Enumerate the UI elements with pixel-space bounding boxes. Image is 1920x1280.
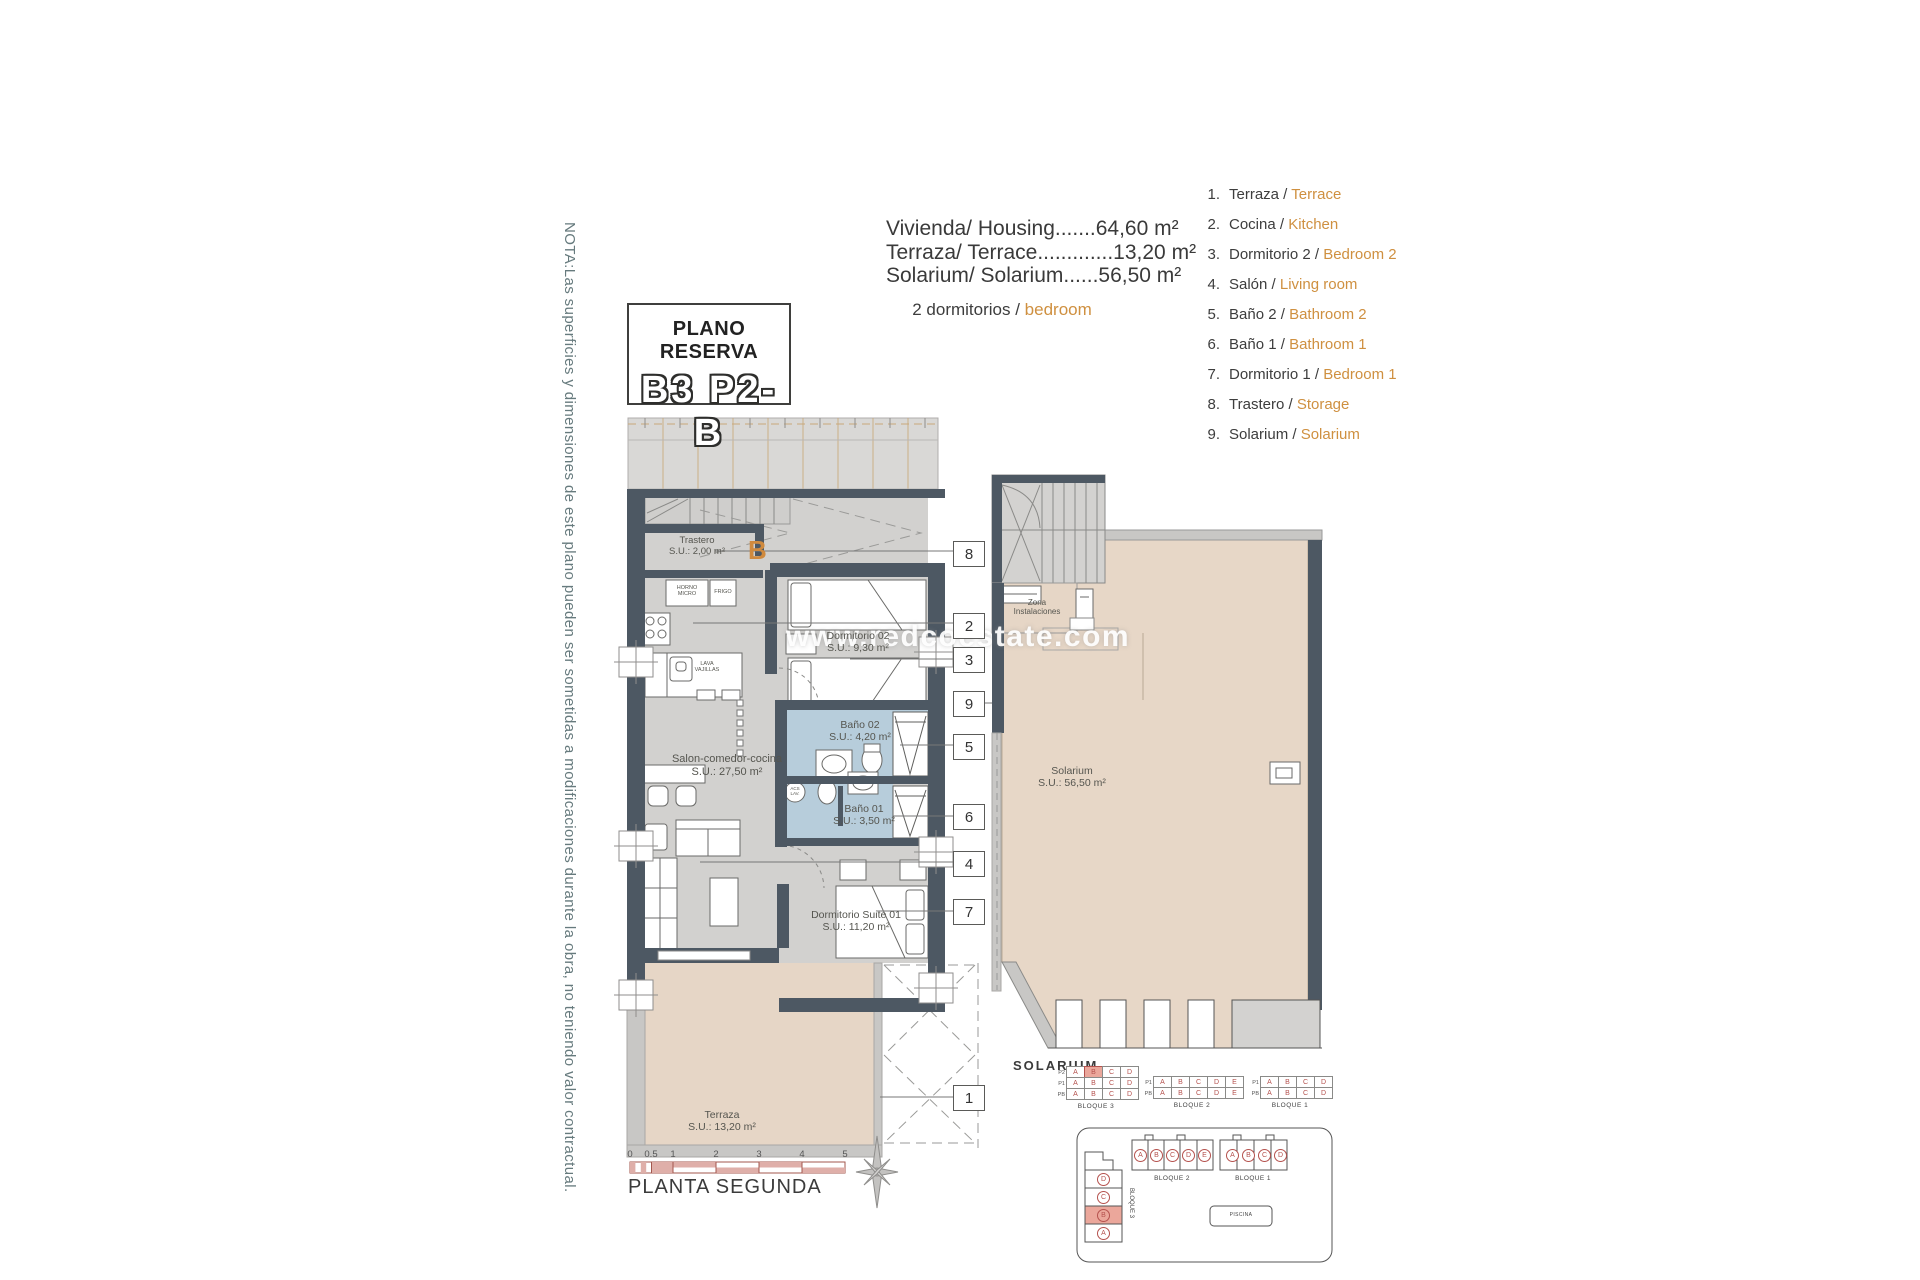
callout-8-trastero: 8 [953, 541, 985, 567]
site-bloque2-label: BLOQUE 2 [1154, 1175, 1190, 1182]
site-unit-b1-d: D [1274, 1149, 1287, 1162]
legend-item-bano2: 5.Baño 2 / Bathroom 2 [1196, 306, 1397, 323]
callout-3-dormitorio2: 3 [953, 647, 985, 673]
legend-item-dormitorio1: 7.Dormitorio 1 / Bedroom 1 [1196, 366, 1397, 383]
legend-item-cocina: 2.Cocina / Kitchen [1196, 216, 1397, 233]
label-zona-instalaciones: ZonaInstalaciones [1014, 598, 1061, 616]
site-unit-b1-a: A [1226, 1149, 1239, 1162]
bedrooms-subtitle-es: 2 dormitorios / [912, 300, 1020, 319]
scale-tick-5: 5 [842, 1149, 847, 1160]
site-unit-b2-d: D [1182, 1149, 1195, 1162]
site-bloque3-label: BLOQUE 3 [1128, 1188, 1134, 1218]
legend-item-salon: 4.Salón / Living room [1196, 276, 1397, 293]
label-frigo: FRIGO [714, 589, 731, 595]
label-solarium: SolariumS.U.: 56,50 m² [1038, 765, 1106, 789]
site-bloque1-label: BLOQUE 1 [1235, 1175, 1271, 1182]
bedrooms-subtitle: 2 dormitorios / bedroom [912, 300, 1092, 320]
site-unit-b2-b: B [1150, 1149, 1163, 1162]
area-solarium: Solarium/ Solarium......56,50 m² [886, 264, 1196, 288]
table-row: PB A B C D [1247, 1088, 1333, 1099]
bloque3-table: P2 A B C D P1 A B C D PB A B C D BLOQUE … [1053, 1067, 1139, 1110]
legend-item-bano1: 6.Baño 1 / Bathroom 1 [1196, 336, 1397, 353]
area-terrace: Terraza/ Terrace.............13,20 m² [886, 241, 1196, 265]
callout-5-bano2: 5 [953, 734, 985, 760]
sliding-door [658, 951, 750, 960]
scale-tick-0: 0 [627, 1149, 632, 1160]
bloque3-caption: BLOQUE 3 [1053, 1103, 1139, 1110]
site-unit-b1-c: C [1258, 1149, 1271, 1162]
label-lavavajillas: LAVA VAJILLAS [692, 661, 722, 674]
table-row: PB A B C D [1053, 1089, 1139, 1100]
site-unit-b3-a: A [1097, 1227, 1110, 1240]
terraza-floor [645, 963, 876, 1145]
callout-1-terraza: 1 [953, 1085, 985, 1111]
site-unit-b1-b: B [1242, 1149, 1255, 1162]
room-legend: 1.Terraza / Terrace 2.Cocina / Kitchen 3… [1196, 186, 1397, 456]
label-bano1: Baño 01S.U.: 3,50 m² [833, 803, 895, 827]
label-dormitorio2: Dormitorio 02S.U.: 9,30 m² [826, 630, 889, 654]
bloque1-table: P1 A B C D PB A B C D BLOQUE 1 [1247, 1077, 1333, 1109]
legend-item-trastero: 8.Trastero / Storage [1196, 396, 1397, 413]
site-unit-b2-e: E [1198, 1149, 1211, 1162]
legend-item-dormitorio2: 3.Dormitorio 2 / Bedroom 2 [1196, 246, 1397, 263]
label-salon: Salon-comedor-cocinaS.U.: 27,50 m² [672, 753, 782, 778]
site-unit-b2-a: A [1134, 1149, 1147, 1162]
site-unit-b3-c: C [1097, 1191, 1110, 1204]
site-unit-b3-d: D [1097, 1173, 1110, 1186]
scale-tick-3: 3 [756, 1149, 761, 1160]
label-trastero: TrasteroS.U.: 2,00 m² [669, 536, 725, 558]
area-housing: Vivienda/ Housing.......64,60 m² [886, 217, 1196, 241]
legend-item-solarium: 9.Solarium / Solarium [1196, 426, 1397, 443]
callout-6-bano1: 6 [953, 804, 985, 830]
scale-tick-1: 1 [670, 1149, 675, 1160]
scale-bar [630, 1162, 845, 1173]
reserve-plan-box: PLANO RESERVA B3 P2-B [627, 303, 791, 405]
bloque1-caption: BLOQUE 1 [1247, 1102, 1333, 1109]
callout-2-cocina: 2 [953, 613, 985, 639]
bloque2-caption: BLOQUE 2 [1140, 1102, 1244, 1109]
callout-9-solarium: 9 [953, 691, 985, 717]
label-bano2: Baño 02S.U.: 4,20 m² [829, 719, 891, 743]
reserve-plan-title: PLANO RESERVA [629, 318, 789, 364]
showers [893, 712, 928, 838]
callout-4-salon: 4 [953, 851, 985, 877]
floorplan-page: NOTA:Las superficies y dimensiones de es… [0, 0, 1920, 1280]
site-pool-label: PISCINA [1230, 1212, 1253, 1218]
site-unit-b2-c: C [1166, 1149, 1179, 1162]
site-unit-b3-b-highlighted: B [1097, 1209, 1110, 1222]
label-horno-micro: HORNO MICRO [669, 585, 705, 598]
solarium-plan [992, 475, 1322, 1048]
scale-tick-2: 2 [713, 1149, 718, 1160]
label-terraza: TerrazaS.U.: 13,20 m² [688, 1109, 756, 1133]
area-summary: Vivienda/ Housing.......64,60 m² Terraza… [886, 217, 1196, 288]
table-row: PB A B C D E [1140, 1088, 1244, 1099]
scale-tick-4: 4 [799, 1149, 804, 1160]
label-acs: ACS LAV. [787, 786, 803, 796]
bedrooms-subtitle-en: bedroom [1025, 300, 1092, 319]
unit-code: B3 P2-B [629, 369, 789, 455]
main-stairs [645, 497, 790, 524]
callout-7-dormitorio1: 7 [953, 899, 985, 925]
scale-tick-05: 0.5 [644, 1149, 657, 1160]
plan-caption: PLANTA SEGUNDA [628, 1176, 822, 1199]
unit-letter-marker: B [748, 535, 767, 566]
bloque2-table: P1 A B C D E PB A B C D E BLOQUE 2 [1140, 1077, 1244, 1109]
label-suite: Dormitorio Suite 01S.U.: 11,20 m² [811, 909, 901, 933]
legend-item-terraza: 1.Terraza / Terrace [1196, 186, 1397, 203]
disclaimer-note: NOTA:Las superficies y dimensiones de es… [561, 222, 578, 1193]
